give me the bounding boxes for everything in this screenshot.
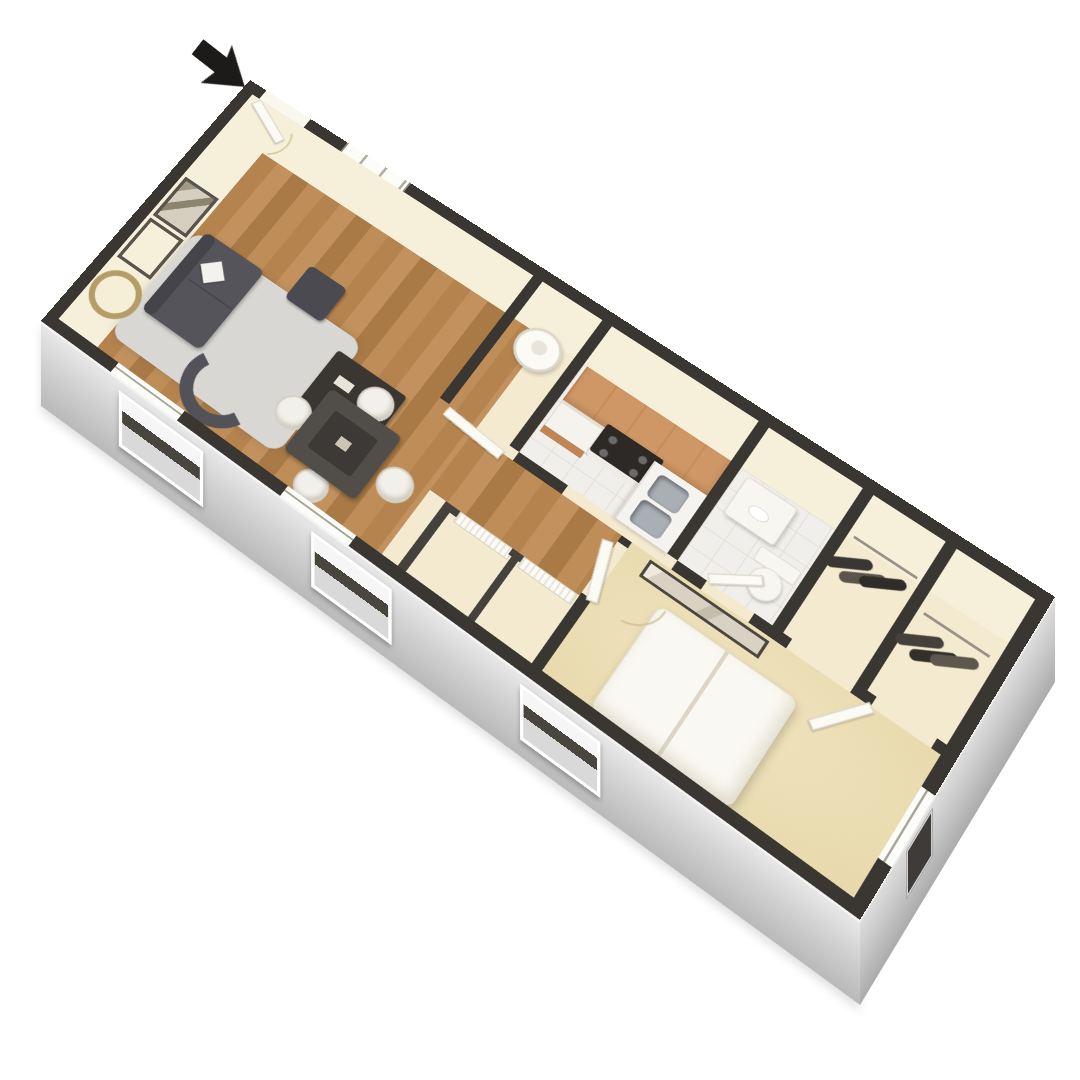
throw-pillow [201, 261, 225, 283]
floorplan-scene [0, 0, 1080, 1080]
bathroom-door [708, 573, 764, 586]
